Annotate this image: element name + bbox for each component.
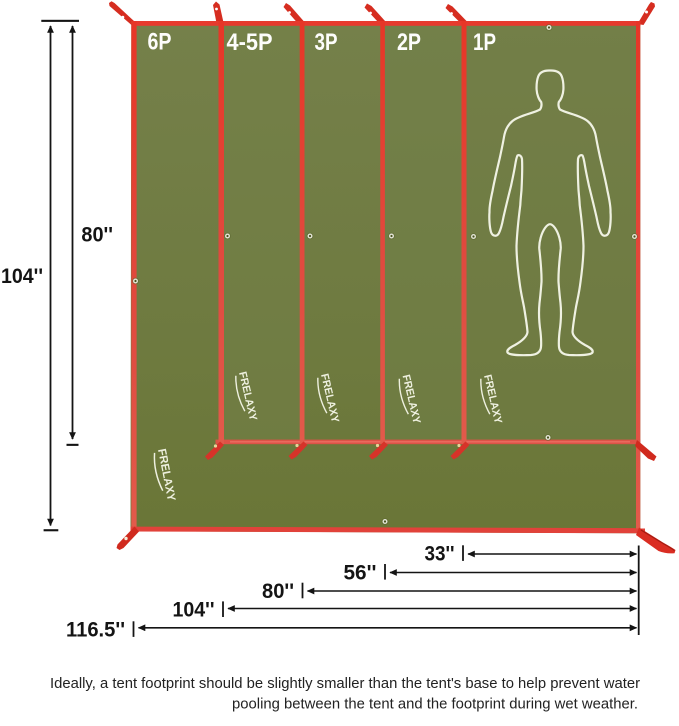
svg-text:6P: 6P — [148, 29, 172, 56]
svg-text:pooling between the tent and t: pooling between the tent and the footpri… — [232, 697, 638, 713]
svg-text:4-5P: 4-5P — [227, 29, 273, 56]
svg-text:1P: 1P — [473, 29, 496, 56]
svg-text:3P: 3P — [315, 29, 338, 56]
svg-text:33'': 33'' — [425, 543, 455, 566]
svg-text:80'': 80'' — [81, 224, 113, 247]
svg-text:104'': 104'' — [1, 265, 43, 288]
svg-text:104'': 104'' — [173, 599, 215, 622]
svg-text:Ideally, a tent footprint shou: Ideally, a tent footprint should be slig… — [50, 676, 640, 692]
svg-text:80'': 80'' — [262, 580, 294, 603]
svg-text:116.5'': 116.5'' — [66, 619, 125, 642]
svg-text:56'': 56'' — [344, 561, 377, 584]
svg-text:2P: 2P — [397, 29, 421, 56]
